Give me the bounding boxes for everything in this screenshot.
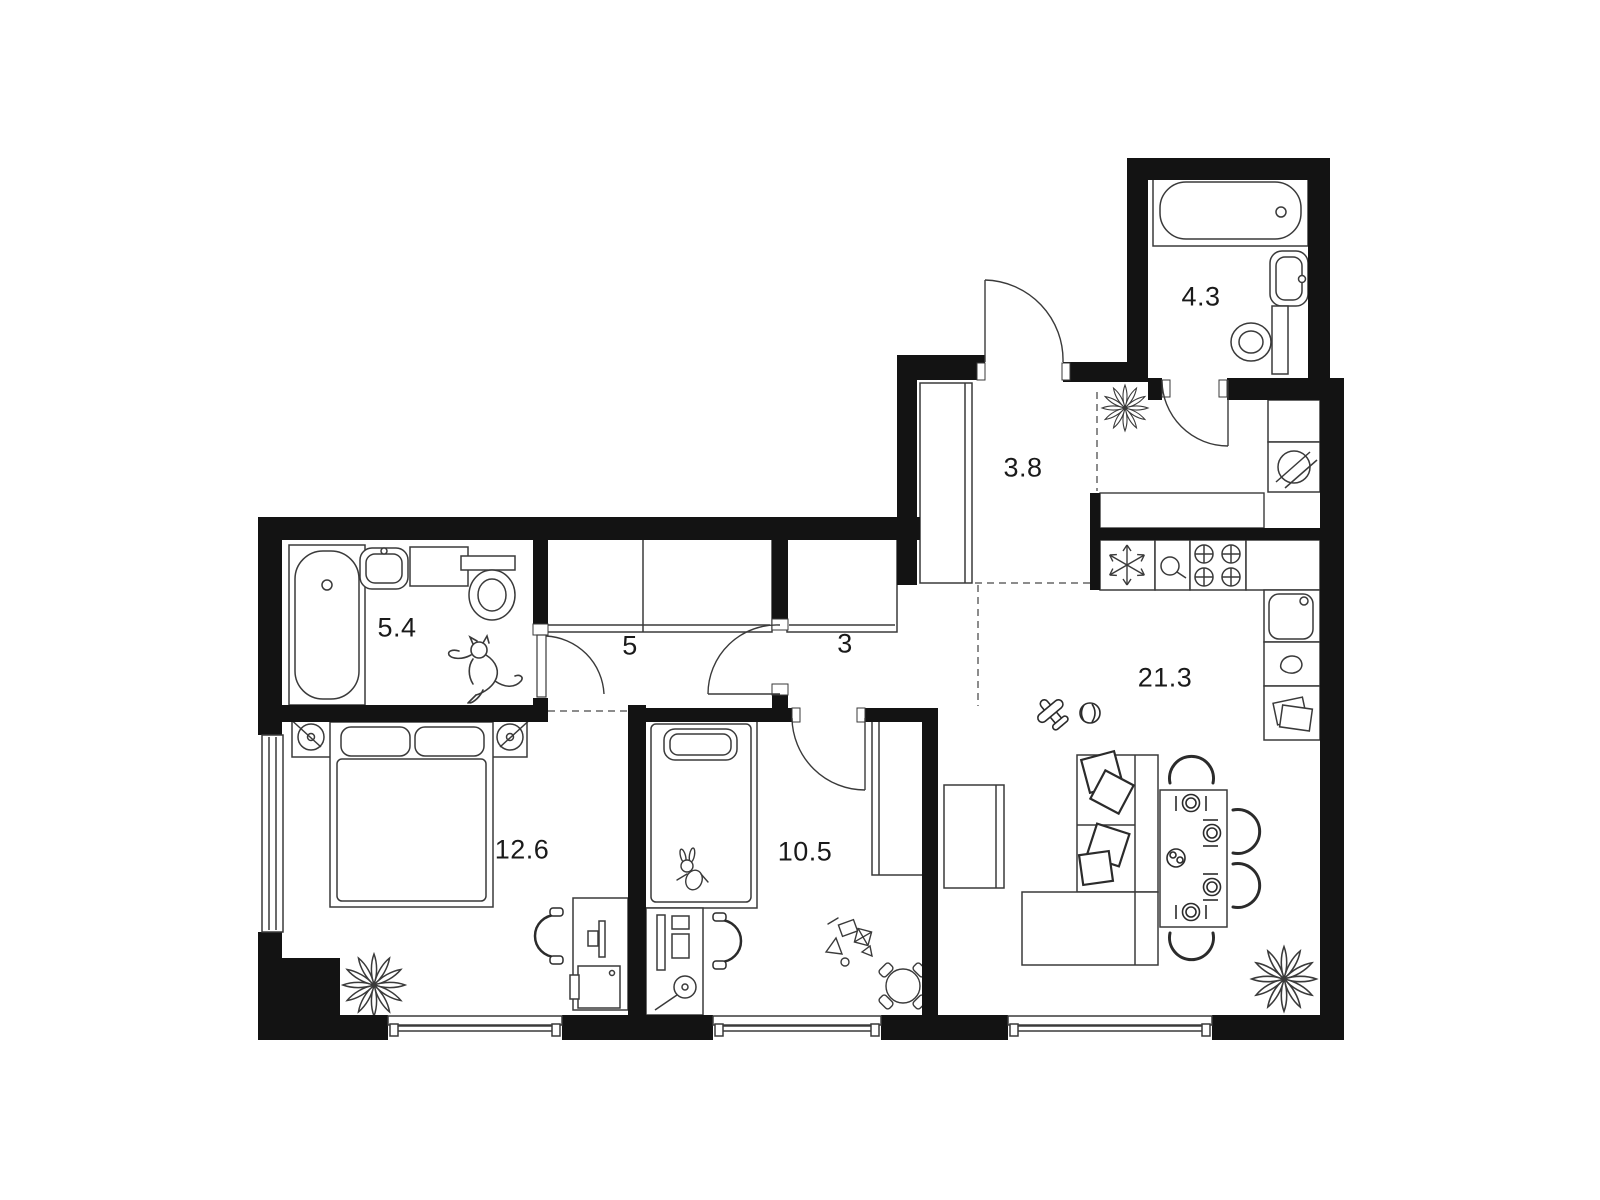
bed-double: [287, 716, 534, 907]
bath-sink-icon: [1270, 251, 1308, 306]
shelf-papers-icon: [1264, 686, 1320, 740]
room-label-kids-room: 10.5: [778, 837, 833, 868]
toilet-icon: [1231, 306, 1288, 374]
bathtub-icon: [289, 545, 365, 705]
tv-console: [944, 785, 1004, 888]
room-label-living-kitchen: 21.3: [1138, 663, 1193, 694]
bath-sink-icon: [360, 548, 408, 589]
room-label-entrance-hall: 3.8: [1003, 453, 1042, 484]
toilet-icon: [461, 556, 515, 620]
bath-cabinet: [410, 547, 468, 586]
stove-icon: [1190, 540, 1246, 590]
corridor-closets: [542, 537, 897, 632]
hallway-wardrobe: [920, 383, 972, 583]
cat-icon: [449, 636, 522, 703]
desk-chair-icon: [535, 908, 563, 964]
dishwasher-drop-icon: [1264, 642, 1320, 686]
toy-plane-icon: [1030, 691, 1074, 735]
ball-icon: [1080, 703, 1100, 723]
room-label-corridor: 5: [622, 631, 638, 662]
kids-table-icon: [878, 962, 928, 1010]
toys-icons: [826, 918, 872, 966]
room-label-bathroom-1: 5.4: [377, 613, 416, 644]
floor-plan-drawing: [0, 0, 1600, 1200]
kitchen-small-unit: [1155, 540, 1190, 590]
plant-icon: [1102, 385, 1148, 431]
bedroom-desk: [570, 898, 628, 1010]
plant-icon: [1252, 947, 1317, 1012]
kids-desk: [646, 908, 703, 1015]
desk-chair-icon: [713, 913, 741, 969]
room-label-bedroom: 12.6: [495, 835, 550, 866]
kitchen-sink-icon: [1264, 590, 1320, 642]
bathtub-icon: [1153, 176, 1308, 246]
kitchen-corner-counter: [1246, 540, 1320, 590]
kitchen-upper-cabinets: [1100, 493, 1264, 528]
plant-icon: [343, 954, 405, 1016]
washing-machine-icon: [1268, 400, 1320, 492]
floor-plan-page: 5.4 5 3 3.8 4.3 12.6 10.5 21.3: [0, 0, 1600, 1200]
room-label-hall: 3: [837, 629, 853, 660]
room-label-bathroom-2: 4.3: [1181, 282, 1220, 313]
